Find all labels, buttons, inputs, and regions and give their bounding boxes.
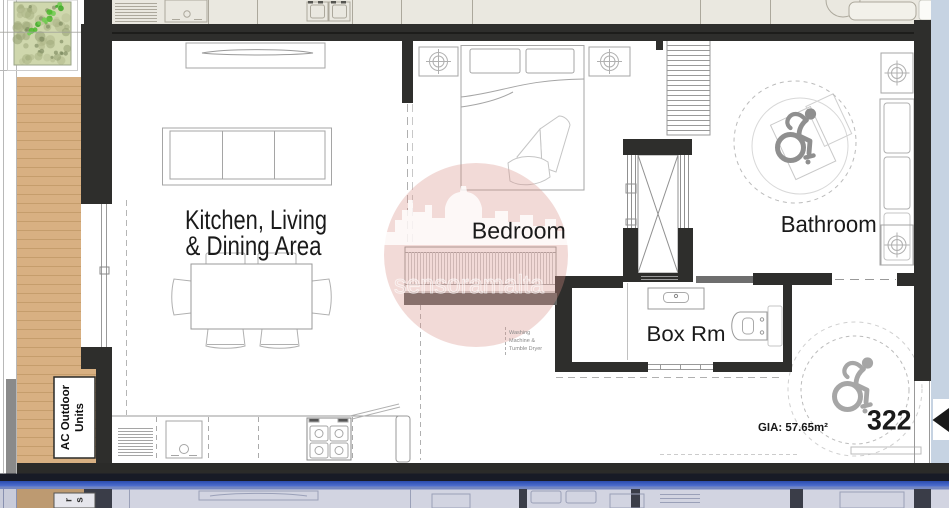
svg-text:s: s xyxy=(75,497,86,503)
svg-text:Units: Units xyxy=(74,403,86,432)
svg-text:AC Outdoor: AC Outdoor xyxy=(60,384,72,450)
svg-text:Bathroom: Bathroom xyxy=(781,211,877,237)
svg-text:Tumble Dryer: Tumble Dryer xyxy=(509,346,542,352)
svg-text:322: 322 xyxy=(867,405,912,436)
svg-text:Box Rm: Box Rm xyxy=(647,322,726,346)
svg-text:Machine &: Machine & xyxy=(509,338,535,344)
svg-text:Washing: Washing xyxy=(509,330,530,336)
svg-text:& Dining Area: & Dining Area xyxy=(186,231,323,261)
svg-text:GIA: 57.65m²: GIA: 57.65m² xyxy=(758,421,828,434)
svg-text:sensoramalta: sensoramalta xyxy=(394,269,545,299)
svg-text:Bedroom: Bedroom xyxy=(472,218,566,244)
svg-text:r: r xyxy=(64,498,75,502)
